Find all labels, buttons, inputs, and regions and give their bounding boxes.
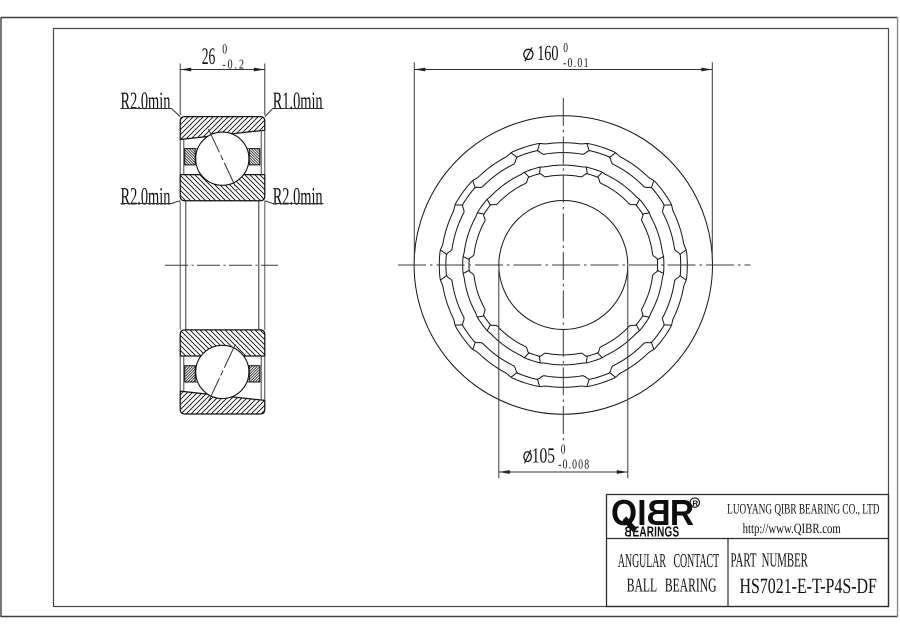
svg-text:PART NUMBER: PART NUMBER <box>731 550 809 572</box>
svg-text:EARINGS: EARINGS <box>633 525 680 541</box>
svg-text:0: 0 <box>561 441 566 456</box>
svg-text:B: B <box>624 525 631 541</box>
svg-text:LUOYANG QIBR BEARING CO., LTD: LUOYANG QIBR BEARING CO., LTD <box>727 501 879 517</box>
svg-text:160: 160 <box>537 41 558 65</box>
svg-text:R: R <box>692 499 698 508</box>
svg-text:ANGULAR CONTACT: ANGULAR CONTACT <box>618 550 719 572</box>
svg-text:http://www.QIBR.com: http://www.QIBR.com <box>743 521 841 537</box>
svg-text:105: 105 <box>532 443 555 467</box>
svg-text:R2.0min: R2.0min <box>121 183 171 210</box>
svg-text:R1.0min: R1.0min <box>273 88 323 115</box>
svg-text:HS7021-E-T-P4S-DF: HS7021-E-T-P4S-DF <box>740 574 877 598</box>
svg-text:0: 0 <box>563 40 568 55</box>
svg-text:R2.0min: R2.0min <box>273 183 323 210</box>
svg-text:BALL BEARING: BALL BEARING <box>627 575 717 597</box>
svg-text:26: 26 <box>202 44 216 70</box>
svg-text:-0.2: -0.2 <box>222 56 246 71</box>
svg-text:R2.0min: R2.0min <box>121 88 171 115</box>
svg-text:-0.008: -0.008 <box>558 456 590 471</box>
svg-text:-0.01: -0.01 <box>563 55 590 70</box>
